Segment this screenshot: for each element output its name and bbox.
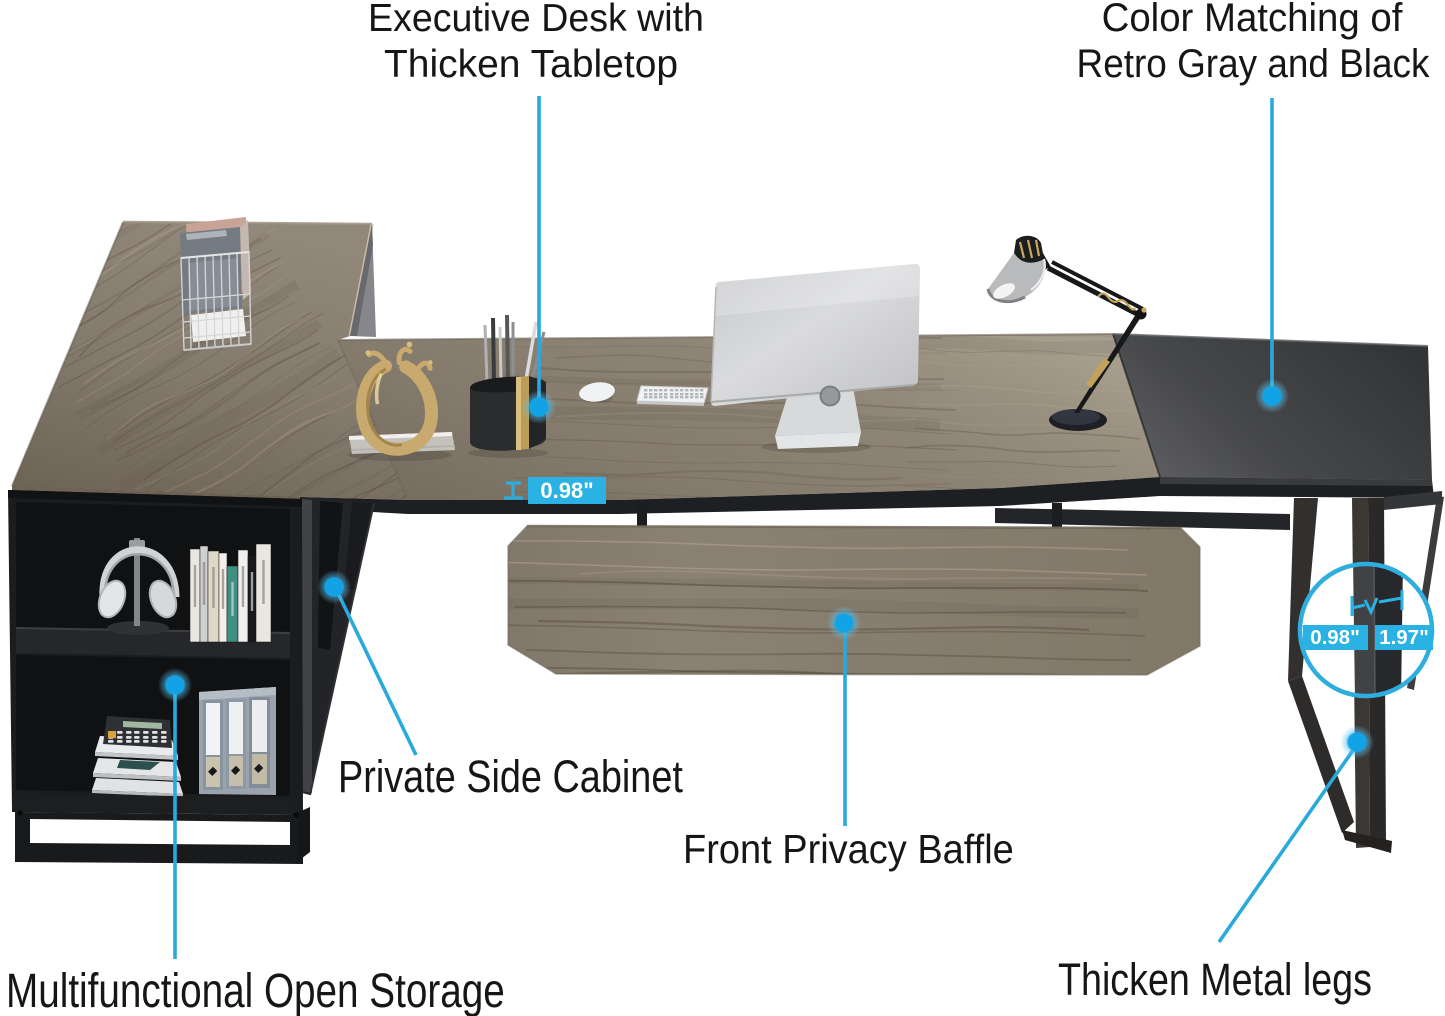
svg-text:Executive Desk with: Executive Desk with [368,0,704,40]
svg-text:Front Privacy Baffle: Front Privacy Baffle [683,827,1014,873]
svg-text:Thicken Tabletop: Thicken Tabletop [384,43,678,86]
svg-text:Thicken Metal legs: Thicken Metal legs [1058,954,1372,1005]
svg-text:Multifunctional Open Storage: Multifunctional Open Storage [6,965,505,1016]
svg-text:0.98": 0.98" [540,478,593,503]
svg-text:Color Matching of: Color Matching of [1102,0,1403,40]
svg-text:Private Side Cabinet: Private Side Cabinet [338,751,683,802]
svg-text:Retro Gray and Black: Retro Gray and Black [1077,42,1431,87]
svg-text:1.97": 1.97" [1379,626,1429,649]
svg-text:0.98": 0.98" [1310,626,1360,649]
